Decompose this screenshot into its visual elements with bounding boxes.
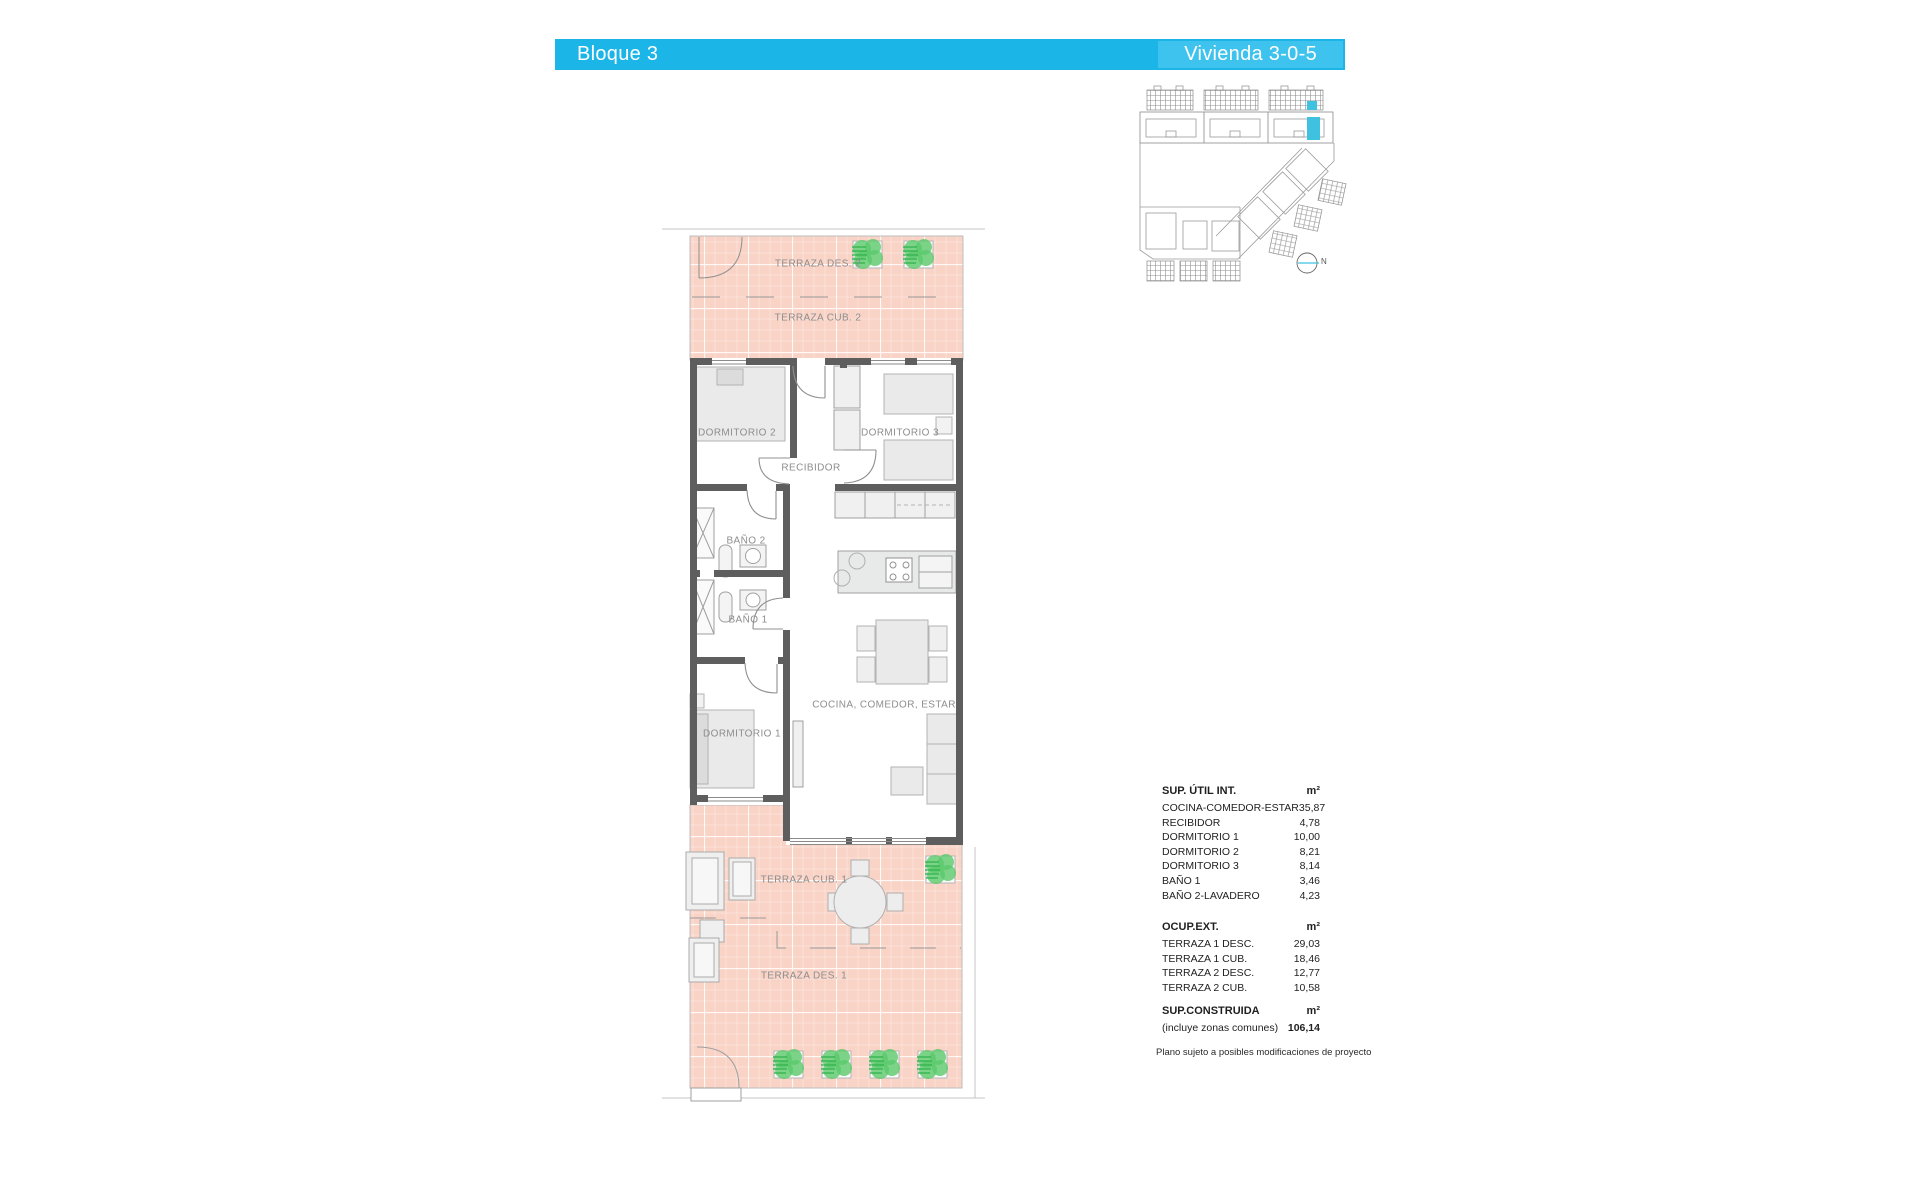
table-row: COCINA-COMEDOR-ESTAR35,87 (1162, 801, 1320, 816)
room-label-dormitorio-2: DORMITORIO 2 (698, 428, 776, 439)
site-pergolas (1147, 86, 1323, 110)
row-value: 18,46 (1274, 952, 1320, 967)
row-label: TERRAZA 1 CUB. (1162, 952, 1247, 967)
row-value: 4,78 (1274, 816, 1320, 831)
wardrobe-icon (834, 366, 860, 450)
room-label-dormitorio-3: DORMITORIO 3 (861, 428, 939, 439)
row-label: TERRAZA 2 DESC. (1162, 966, 1254, 981)
room-label-bano-2: BAÑO 2 (726, 536, 765, 547)
north-label: N (1321, 257, 1327, 266)
room-label-cocina: COCINA, COMEDOR, ESTAR (812, 700, 956, 711)
site-lowrise-units (1146, 149, 1328, 251)
table-row: DORMITORIO 28,21 (1162, 845, 1320, 860)
row-label: BAÑO 1 (1162, 874, 1201, 889)
header-bar: Bloque 3 Vivienda 3-0-5 (555, 39, 1345, 70)
table-title: OCUP.EXT. (1162, 917, 1219, 937)
room-label-terraza-des-1: TERRAZA DES. 1 (761, 971, 847, 982)
table-title: SUP. ÚTIL INT. (1162, 781, 1236, 801)
row-value: 35,87 (1299, 801, 1325, 816)
site-boundary (1140, 143, 1334, 259)
table-unit: m² (1274, 781, 1320, 801)
table-row: BAÑO 2-LAVADERO4,23 (1162, 889, 1320, 904)
plant-icon (925, 854, 956, 884)
row-label: DORMITORIO 1 (1162, 830, 1239, 845)
plant-icon (917, 1049, 948, 1079)
room-label-dormitorio-1: DORMITORIO 1 (703, 729, 781, 740)
room-label-recibidor: RECIBIDOR (781, 463, 840, 474)
plant-icon (821, 1049, 852, 1079)
table-unit: m² (1274, 1001, 1320, 1021)
row-value: 29,03 (1274, 937, 1320, 952)
row-value: 106,14 (1278, 1021, 1320, 1037)
tv-unit-icon (793, 721, 803, 787)
row-label: RECIBIDOR (1162, 816, 1220, 831)
row-label: DORMITORIO 3 (1162, 859, 1239, 874)
table-row: TERRAZA 2 CUB.10,58 (1162, 981, 1320, 996)
row-label: TERRAZA 1 DESC. (1162, 937, 1254, 952)
table-row: (incluye zonas comunes) 106,14 (1162, 1021, 1320, 1037)
terrace-2 (690, 236, 963, 360)
table-row: TERRAZA 1 CUB.18,46 (1162, 952, 1320, 967)
table-row: DORMITORIO 38,14 (1162, 859, 1320, 874)
room-label-bano-1: BAÑO 1 (728, 615, 767, 626)
row-value: 8,21 (1274, 845, 1320, 860)
table-header: SUP. ÚTIL INT. m² (1162, 781, 1320, 801)
row-value: 12,77 (1274, 966, 1320, 981)
plant-icon (903, 239, 934, 269)
site-unit-parking-highlight (1307, 101, 1317, 110)
table-ocup-ext: OCUP.EXT. m² TERRAZA 1 DESC.29,03 TERRAZ… (1162, 917, 1320, 995)
row-value: 3,46 (1274, 874, 1320, 889)
row-label: (incluye zonas comunes) (1162, 1021, 1278, 1037)
row-value: 10,58 (1274, 981, 1320, 996)
table-header: SUP.CONSTRUIDA m² (1162, 1001, 1320, 1021)
site-building-band (1140, 112, 1333, 143)
block-label: Bloque 3 (577, 43, 658, 66)
kitchen-counter-icon (834, 551, 956, 593)
table-row: RECIBIDOR4,78 (1162, 816, 1320, 831)
plan-page: Bloque 3 Vivienda 3-0-5 (0, 0, 1920, 1200)
terrace-1 (686, 805, 962, 1101)
plant-icon (773, 1049, 804, 1079)
row-value: 4,23 (1274, 889, 1320, 904)
row-label: COCINA-COMEDOR-ESTAR (1162, 801, 1299, 816)
table-row: TERRAZA 1 DESC.29,03 (1162, 937, 1320, 952)
row-label: BAÑO 2-LAVADERO (1162, 889, 1260, 904)
table-sup-construida: SUP.CONSTRUIDA m² (incluye zonas comunes… (1162, 1001, 1320, 1037)
room-label-terraza-des-2: TERRAZA DES. 2 (775, 259, 861, 270)
row-label: TERRAZA 2 CUB. (1162, 981, 1247, 996)
table-unit: m² (1274, 917, 1320, 937)
table-row: BAÑO 13,46 (1162, 874, 1320, 889)
row-value: 10,00 (1274, 830, 1320, 845)
unit-label: Vivienda 3-0-5 (1158, 41, 1343, 68)
north-indicator (1297, 253, 1319, 273)
wardrobe-icon (835, 492, 955, 518)
table-row: TERRAZA 2 DESC.12,77 (1162, 966, 1320, 981)
room-label-terraza-cub-1: TERRAZA CUB. 1 (761, 875, 848, 886)
table-sup-util: SUP. ÚTIL INT. m² COCINA-COMEDOR-ESTAR35… (1162, 781, 1320, 903)
site-unit-highlight (1307, 117, 1320, 140)
plant-icon (869, 1049, 900, 1079)
table-header: OCUP.EXT. m² (1162, 917, 1320, 937)
row-value: 8,14 (1274, 859, 1320, 874)
row-label: DORMITORIO 2 (1162, 845, 1239, 860)
table-title: SUP.CONSTRUIDA (1162, 1001, 1260, 1021)
disclaimer-note: Plano sujeto a posibles modificaciones d… (1156, 1047, 1371, 1058)
table-row: DORMITORIO 110,00 (1162, 830, 1320, 845)
room-label-terraza-cub-2: TERRAZA CUB. 2 (775, 313, 862, 324)
